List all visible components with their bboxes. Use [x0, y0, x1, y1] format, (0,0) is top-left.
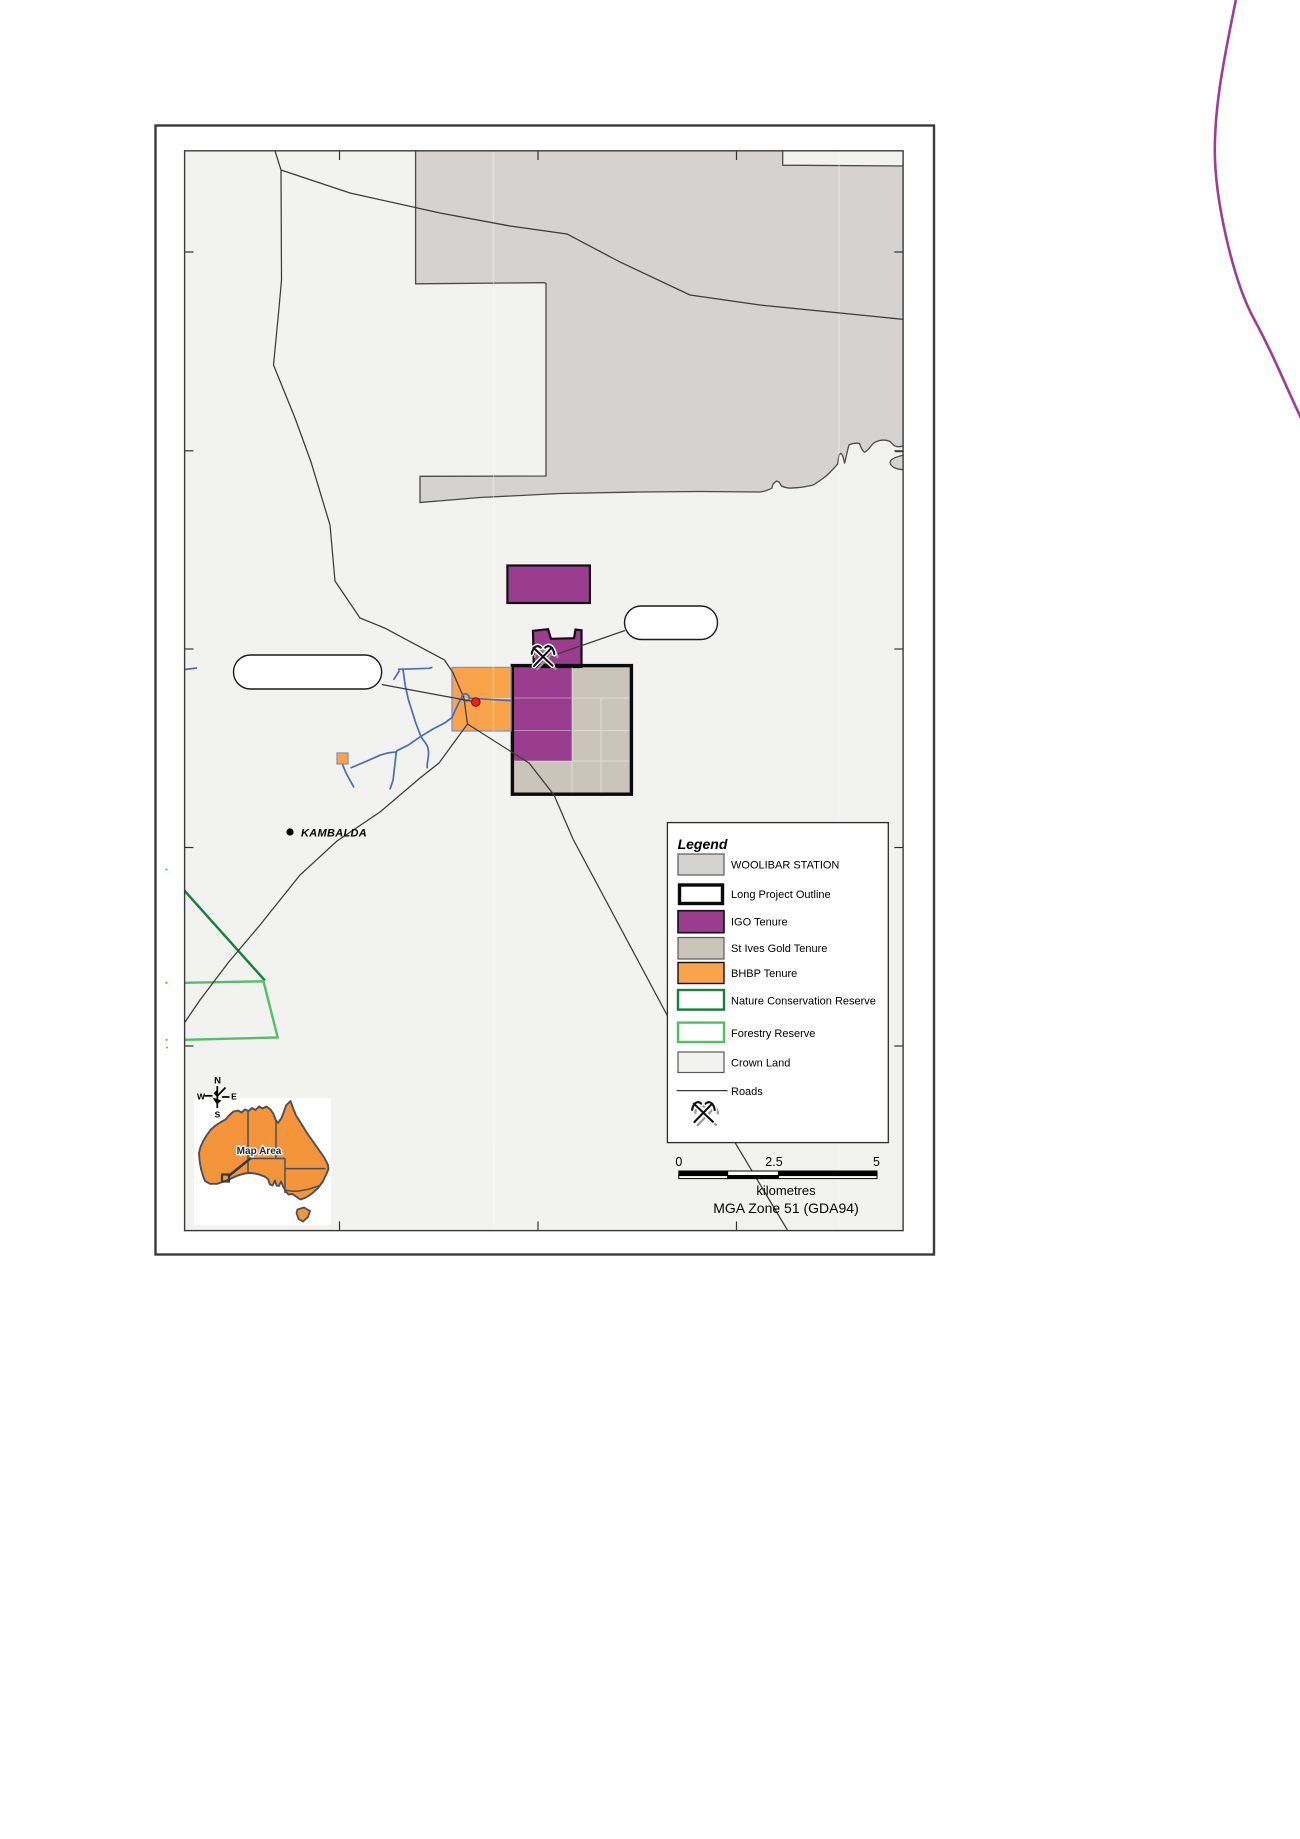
svg-text:Crown Land: Crown Land: [731, 1058, 790, 1070]
svg-text:kilometres: kilometres: [756, 1183, 816, 1198]
svg-text:N: N: [214, 1076, 221, 1087]
svg-text:0: 0: [675, 1155, 682, 1169]
svg-text:Roads: Roads: [731, 1086, 763, 1098]
svg-text:E: E: [231, 1092, 237, 1102]
svg-text:KAMBALDA: KAMBALDA: [301, 828, 367, 840]
svg-text:WOOLIBAR STATION: WOOLIBAR STATION: [731, 860, 839, 872]
svg-text:St Ives Gold Tenure: St Ives Gold Tenure: [731, 943, 827, 955]
svg-text:Forestry Reserve: Forestry Reserve: [731, 1028, 815, 1040]
svg-text:5: 5: [873, 1155, 880, 1169]
svg-text:Nature Conservation Reserve: Nature Conservation Reserve: [731, 996, 876, 1008]
svg-text:IGO Tenure: IGO Tenure: [731, 917, 788, 929]
svg-text:Legend: Legend: [678, 836, 728, 852]
svg-text:S: S: [215, 1110, 221, 1120]
svg-text:Map Area: Map Area: [237, 1146, 282, 1157]
svg-text:2.5: 2.5: [765, 1155, 782, 1169]
svg-text:BHBP Tenure: BHBP Tenure: [731, 968, 797, 980]
svg-text:Long Project Outline: Long Project Outline: [731, 889, 831, 901]
svg-text:MGA Zone 51 (GDA94): MGA Zone 51 (GDA94): [713, 1200, 859, 1216]
